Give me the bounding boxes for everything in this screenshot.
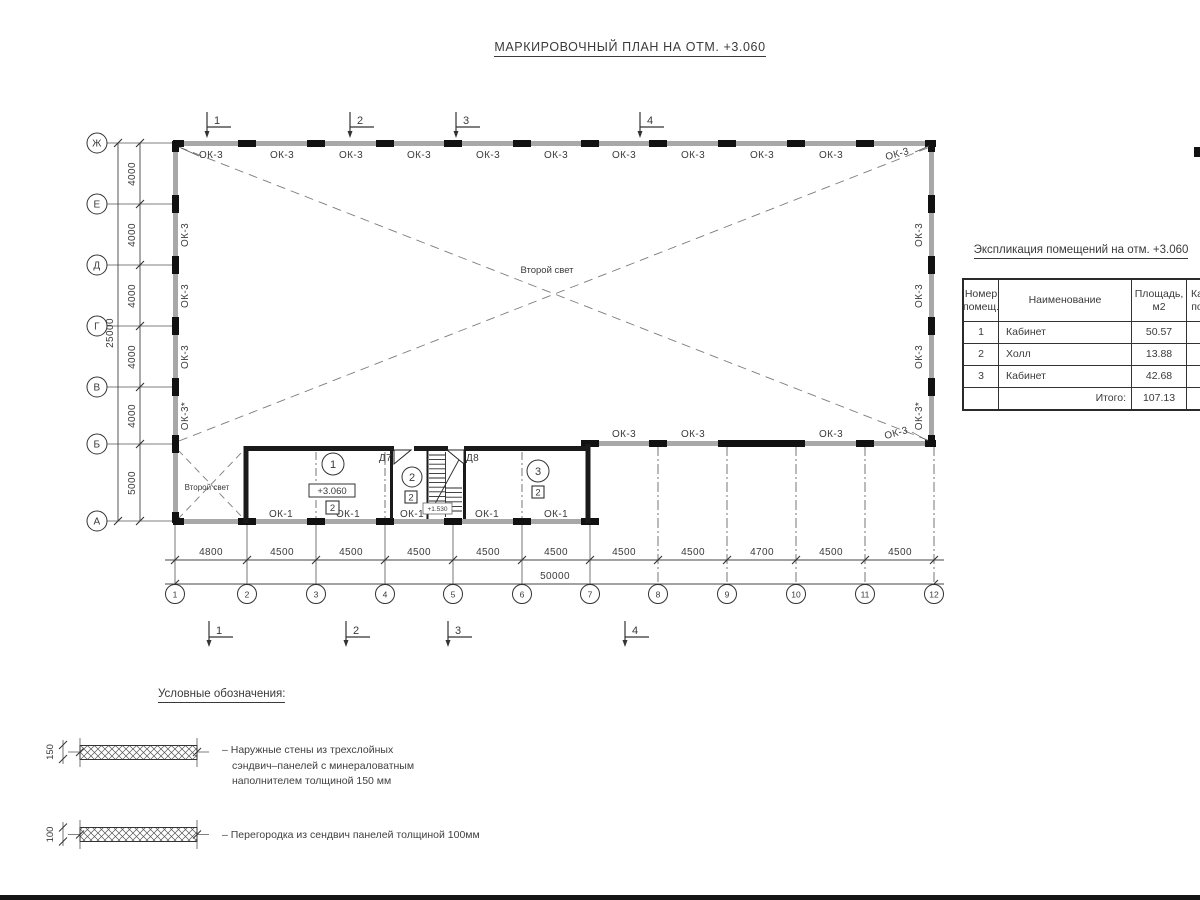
- axis-number: 7: [588, 590, 593, 600]
- window-label: ОК-3: [612, 429, 636, 440]
- second-light-label: Второй свет: [520, 265, 574, 276]
- sheet-frame-bottom: [0, 895, 1200, 900]
- window-label: ОК-3: [407, 150, 431, 161]
- window-label: ОК-1: [336, 509, 360, 520]
- dim-label: 4700: [750, 547, 774, 558]
- window-label: ОК-1: [269, 509, 293, 520]
- stair-landing-elevation: +1.530: [423, 503, 452, 514]
- window-label: ОК-3: [681, 429, 705, 440]
- window-labels-mid: ОК-3 ОК-3 ОК-3 ОК-3: [612, 425, 928, 442]
- dim-label: 4000: [127, 284, 138, 308]
- room-number: 3: [535, 466, 541, 478]
- floor-plan-drawing: ОК-3 ОК-3 ОК-3 ОК-3 ОК-3 ОК-3 ОК-3 ОК-3 …: [0, 0, 1200, 900]
- window-label: ОК-3*: [914, 402, 925, 430]
- door-leaf-d8: [447, 450, 464, 464]
- cell-room-category: [1186, 343, 1200, 365]
- axis-number: 12: [929, 590, 939, 600]
- room-number: 1: [330, 459, 336, 471]
- axis-letter: Г: [94, 322, 100, 333]
- dim-label: 4500: [407, 547, 431, 558]
- legend-line: – Перегородка из сендвич панелей толщино…: [222, 828, 480, 844]
- cell-room-area: 50.57: [1131, 321, 1186, 343]
- room-3-marks: 3 2: [527, 460, 549, 499]
- cell-total-blank: [1186, 387, 1200, 409]
- window-label: ОК-3: [819, 150, 843, 161]
- legend-item-exterior-wall: – Наружные стены из трехслойных сэндвич–…: [222, 743, 414, 790]
- window-label: ОК-3: [884, 146, 910, 163]
- dim-label: 4000: [127, 162, 138, 186]
- section-number: 4: [632, 625, 638, 637]
- axis-letter: Д: [93, 261, 100, 272]
- drawing-sheet: ОК-3 ОК-3 ОК-3 ОК-3 ОК-3 ОК-3 ОК-3 ОК-3 …: [0, 0, 1200, 900]
- axis-number: 5: [451, 590, 456, 600]
- section-number: 4: [647, 115, 653, 127]
- dim-label: 4500: [339, 547, 363, 558]
- axis-letter: А: [93, 517, 100, 528]
- legend-line: сэндвич–панелей с минераловатным: [222, 759, 414, 775]
- door-label-d8: Д8: [466, 453, 479, 464]
- total-area: 107.13: [1131, 387, 1186, 409]
- window-label: ОК-3: [750, 150, 774, 161]
- axis-number: 2: [245, 590, 250, 600]
- legend-line: наполнителем толщиной 150 мм: [222, 774, 414, 790]
- cell-room-name: Кабинет: [998, 321, 1131, 343]
- room-type-tag: 2: [408, 493, 413, 504]
- legend-thickness-label: 150: [45, 744, 56, 760]
- window-label: ОК-3: [180, 223, 191, 247]
- cell-room-area: 13.88: [1131, 343, 1186, 365]
- axis-letter: Б: [94, 440, 101, 451]
- second-light-label: Второй свет: [185, 483, 230, 492]
- page-title: МАРКИРОВОЧНЫЙ ПЛАН НА ОТМ. +3.060: [430, 40, 830, 57]
- dim-label: 4000: [127, 404, 138, 428]
- window-label: ОК-3: [819, 429, 843, 440]
- section-mark-numbers-top: 1 2 3 4: [214, 115, 653, 127]
- room-schedule-table: Номерпомещ. Наименование Площадь,м2 Капо…: [962, 278, 1200, 411]
- axis-letter: В: [93, 383, 100, 394]
- axis-number: 11: [861, 590, 870, 600]
- cell-total-blank: [964, 387, 998, 409]
- window-label: ОК-3: [681, 150, 705, 161]
- section-number: 3: [455, 625, 461, 637]
- window-label: ОК-3: [914, 345, 925, 369]
- axis-number: 8: [656, 590, 661, 600]
- legend-wall-symbol-partition: [59, 820, 209, 849]
- axis-number: 3: [314, 590, 319, 600]
- window-label: ОК-3: [270, 150, 294, 161]
- window-label: ОК-1: [400, 509, 424, 520]
- label-leader-line: [912, 432, 928, 441]
- window-labels-top: ОК-3 ОК-3 ОК-3 ОК-3 ОК-3 ОК-3 ОК-3 ОК-3 …: [181, 146, 929, 163]
- legend-line: – Наружные стены из трехслойных: [222, 743, 414, 759]
- door-leaf-d7: [394, 450, 411, 464]
- cell-room-area: 42.68: [1131, 365, 1186, 387]
- left-dimensions: 4000 4000 4000 4000 4000 5000 25000: [105, 139, 144, 525]
- second-light-cross-main: [179, 147, 930, 441]
- window-label: ОК-3: [199, 150, 223, 161]
- legend-wall-symbol-exterior: [59, 738, 209, 767]
- room-type-tag: 2: [535, 488, 540, 499]
- room-elevation: +3.060: [317, 486, 346, 497]
- window-label: ОК-3: [180, 345, 191, 369]
- cell-room-number: 3: [964, 365, 998, 387]
- section-marks-top: [205, 112, 665, 138]
- schedule-title: Экспликация помещений на отм. +3.060: [958, 244, 1200, 259]
- door-label-d7: Д7: [379, 453, 392, 464]
- legend-title: Условные обозначения:: [158, 688, 285, 703]
- header-category: Капо: [1186, 280, 1200, 321]
- cell-room-category: [1186, 321, 1200, 343]
- header-room-number: Номерпомещ.: [964, 280, 998, 321]
- header-name: Наименование: [998, 280, 1131, 321]
- clipped-element-right: [1194, 147, 1200, 157]
- window-labels-left: ОК-3 ОК-3 ОК-3 ОК-3*: [180, 223, 191, 430]
- window-label: ОК-3: [914, 284, 925, 308]
- dim-label: 4800: [199, 547, 223, 558]
- axis-number: 6: [520, 590, 525, 600]
- legend-thickness-label: 100: [45, 827, 56, 843]
- section-number: 1: [214, 115, 220, 127]
- dim-label: 4000: [127, 223, 138, 247]
- window-label: ОК-3: [476, 150, 500, 161]
- dim-label: 4500: [612, 547, 636, 558]
- dim-label: 4500: [544, 547, 568, 558]
- room-number: 2: [409, 472, 415, 484]
- section-mark-numbers-bottom: 1 2 3 4: [216, 625, 638, 637]
- window-label: ОК-3: [544, 150, 568, 161]
- window-label: ОК-3: [914, 223, 925, 247]
- dim-label: 4000: [127, 345, 138, 369]
- axis-letter: Е: [93, 200, 100, 211]
- column-axis-numbers: 1 2 3 4 5 6 7 8 9 10 11 12: [173, 590, 939, 600]
- window-label: ОК-1: [475, 509, 499, 520]
- dim-label: 5000: [127, 471, 138, 495]
- total-label: Итого:: [998, 387, 1131, 409]
- bottom-dimensions: 4800 4500 4500 4500 4500 4500 4500 4500 …: [165, 547, 944, 588]
- dim-label: 4500: [819, 547, 843, 558]
- axis-number: 4: [383, 590, 388, 600]
- section-number: 2: [357, 115, 363, 127]
- axis-number: 9: [725, 590, 730, 600]
- exterior-walls: [173, 141, 936, 523]
- cell-room-number: 2: [964, 343, 998, 365]
- cell-room-name: Кабинет: [998, 365, 1131, 387]
- dim-label: 4500: [270, 547, 294, 558]
- dim-label: 4500: [681, 547, 705, 558]
- dim-label: 4500: [476, 547, 500, 558]
- cell-room-name: Холл: [998, 343, 1131, 365]
- room-type-tag: 2: [330, 503, 335, 514]
- dim-total-label: 50000: [540, 571, 570, 582]
- column-axis-bubbles: [166, 585, 944, 604]
- cell-room-category: [1186, 365, 1200, 387]
- window-label: ОК-3: [180, 284, 191, 308]
- section-number: 2: [353, 625, 359, 637]
- section-marks-bottom: [207, 621, 650, 647]
- axis-letter: Ж: [92, 139, 102, 150]
- window-label: ОК-3*: [180, 402, 191, 430]
- dim-label: 4500: [888, 547, 912, 558]
- axis-number: 10: [791, 590, 801, 600]
- section-number: 3: [463, 115, 469, 127]
- axis-number: 1: [173, 590, 178, 600]
- window-label: ОК-1: [544, 509, 568, 520]
- room-2-marks: 2 2: [402, 467, 422, 504]
- header-area: Площадь,м2: [1131, 280, 1186, 321]
- window-label: ОК-3: [339, 150, 363, 161]
- elevation-value: +1.530: [427, 506, 447, 513]
- section-number: 1: [216, 625, 222, 637]
- legend-item-partition: – Перегородка из сендвич панелей толщино…: [222, 828, 480, 844]
- window-labels-right: ОК-3 ОК-3 ОК-3 ОК-3*: [914, 223, 925, 430]
- window-label: ОК-3: [883, 425, 909, 442]
- cell-room-number: 1: [964, 321, 998, 343]
- window-label: ОК-3: [612, 150, 636, 161]
